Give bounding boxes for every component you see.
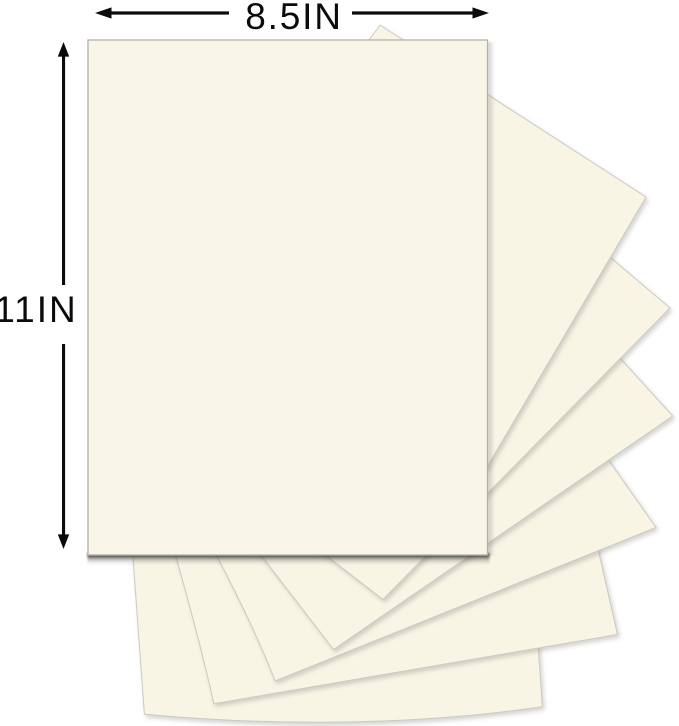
svg-text:11IN: 11IN xyxy=(0,289,78,330)
svg-text:8.5IN: 8.5IN xyxy=(245,0,342,37)
